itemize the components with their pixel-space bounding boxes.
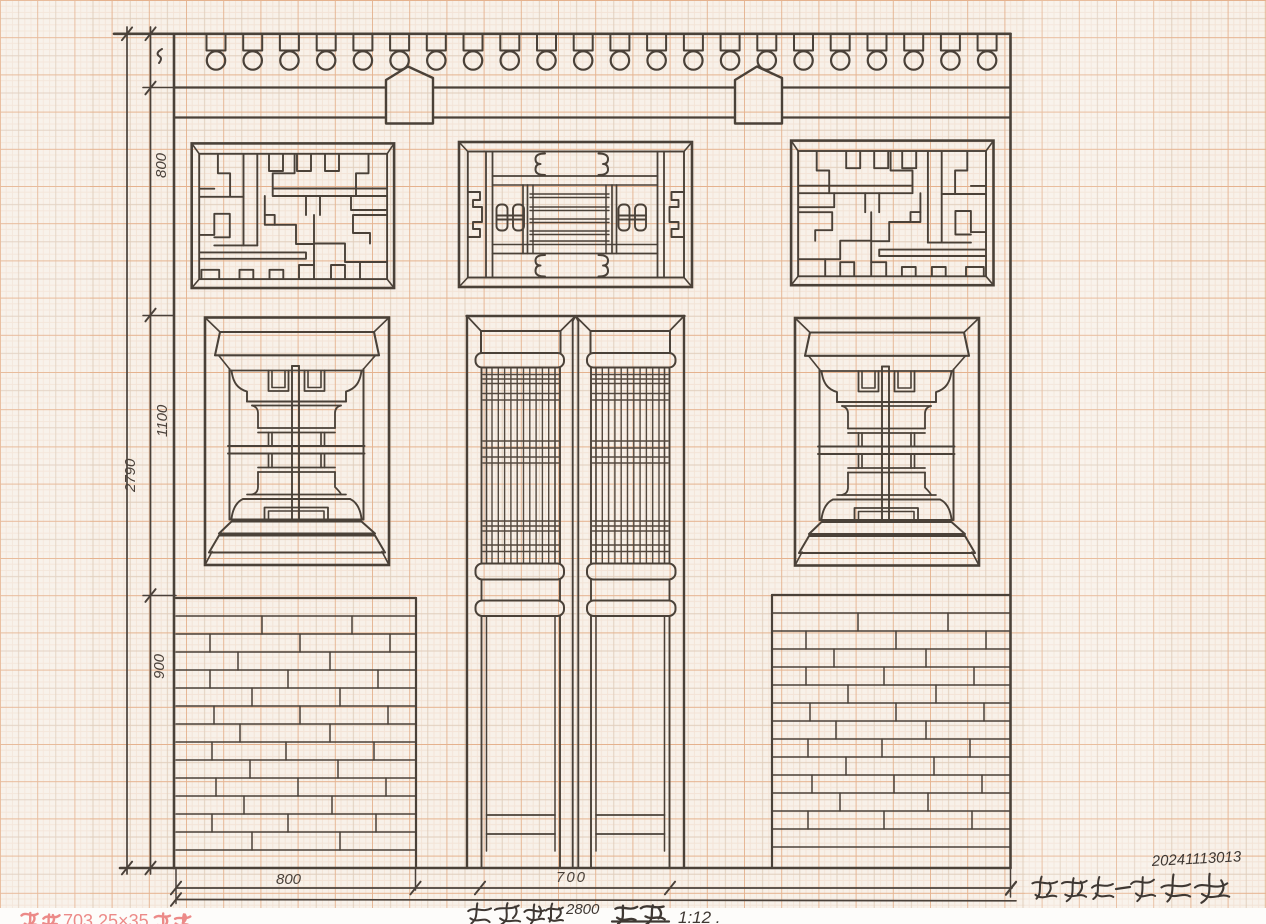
svg-text:2800: 2800 <box>565 901 600 918</box>
svg-text:2790: 2790 <box>122 458 139 493</box>
svg-text:703 25×35: 703 25×35 <box>63 911 149 924</box>
svg-text:800: 800 <box>153 152 170 178</box>
svg-text:800: 800 <box>276 871 302 888</box>
svg-text:700: 700 <box>556 869 587 886</box>
svg-text:900: 900 <box>151 653 168 679</box>
svg-text:1100: 1100 <box>154 404 171 437</box>
svg-text:1:12 .: 1:12 . <box>678 908 721 924</box>
